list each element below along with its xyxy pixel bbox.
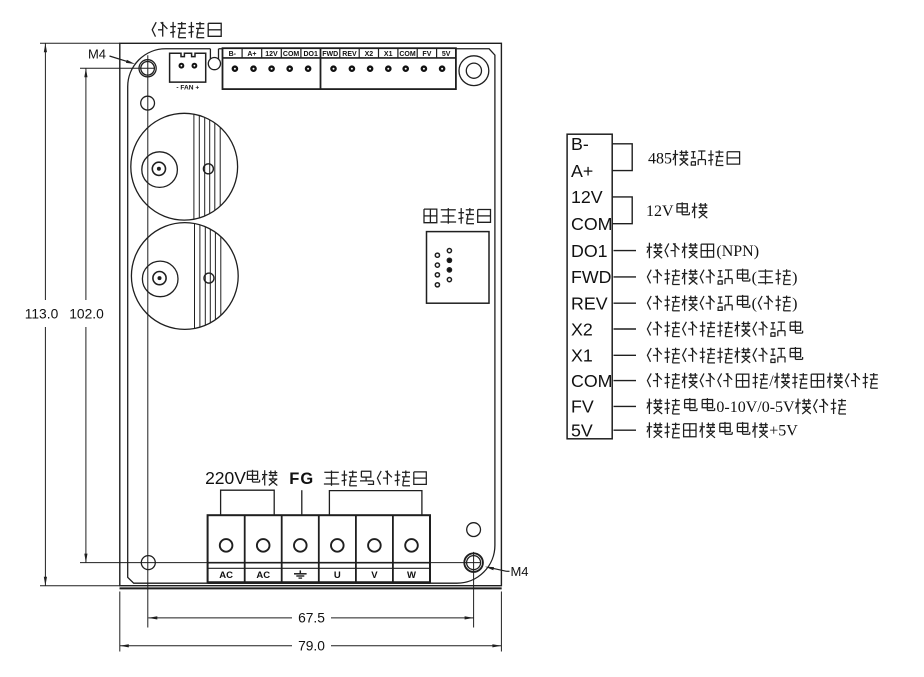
svg-text:0-10V/0-5V: 0-10V/0-5V xyxy=(716,399,795,416)
svg-text:AC: AC xyxy=(219,570,233,581)
svg-text:(: ( xyxy=(752,296,757,313)
svg-text:79.0: 79.0 xyxy=(298,638,325,653)
svg-text:): ) xyxy=(792,296,797,313)
svg-text:5V: 5V xyxy=(442,51,451,58)
svg-text:(: ( xyxy=(752,269,757,286)
svg-text:REV: REV xyxy=(571,294,608,314)
svg-text:113.0: 113.0 xyxy=(25,307,59,322)
svg-text:X1: X1 xyxy=(571,346,593,366)
svg-text:DO1: DO1 xyxy=(303,51,318,58)
svg-text:W: W xyxy=(407,570,416,581)
svg-text:102.0: 102.0 xyxy=(69,307,104,322)
svg-text:B-: B- xyxy=(229,51,237,58)
svg-text:5V: 5V xyxy=(571,421,593,441)
svg-text:67.5: 67.5 xyxy=(298,610,325,625)
svg-text:+5V: +5V xyxy=(769,423,798,440)
svg-text:12V: 12V xyxy=(265,51,278,58)
svg-text:REV: REV xyxy=(342,51,357,58)
svg-text:COM: COM xyxy=(283,51,300,58)
svg-text:X2: X2 xyxy=(365,51,374,58)
svg-text:): ) xyxy=(792,269,797,286)
svg-text:A+: A+ xyxy=(571,161,593,181)
svg-text:DO1: DO1 xyxy=(571,241,608,261)
svg-text:V: V xyxy=(371,570,378,581)
svg-text:FV: FV xyxy=(571,397,594,417)
svg-text:M4: M4 xyxy=(88,47,106,62)
svg-text:M4: M4 xyxy=(510,564,528,579)
svg-text:AC: AC xyxy=(256,570,270,581)
svg-text:B-: B- xyxy=(571,134,589,154)
svg-text:X2: X2 xyxy=(571,319,593,339)
svg-text:FWD: FWD xyxy=(571,267,612,287)
svg-text:220V: 220V xyxy=(205,468,246,488)
svg-text:/: / xyxy=(769,373,774,390)
svg-text:FWD: FWD xyxy=(322,51,338,58)
svg-text:12V: 12V xyxy=(571,187,603,207)
svg-text:COM: COM xyxy=(399,51,416,58)
svg-text:12V: 12V xyxy=(646,203,674,220)
svg-text:485: 485 xyxy=(648,150,672,167)
svg-text:X1: X1 xyxy=(384,51,393,58)
svg-text:(NPN): (NPN) xyxy=(716,243,759,260)
svg-text:FV: FV xyxy=(422,51,431,58)
svg-text:U: U xyxy=(334,570,341,581)
svg-text:- FAN +: - FAN + xyxy=(176,84,199,91)
svg-text:COM: COM xyxy=(571,371,612,391)
svg-text:COM: COM xyxy=(571,214,612,234)
svg-text:FG: FG xyxy=(289,470,314,488)
svg-text:A+: A+ xyxy=(247,51,256,58)
